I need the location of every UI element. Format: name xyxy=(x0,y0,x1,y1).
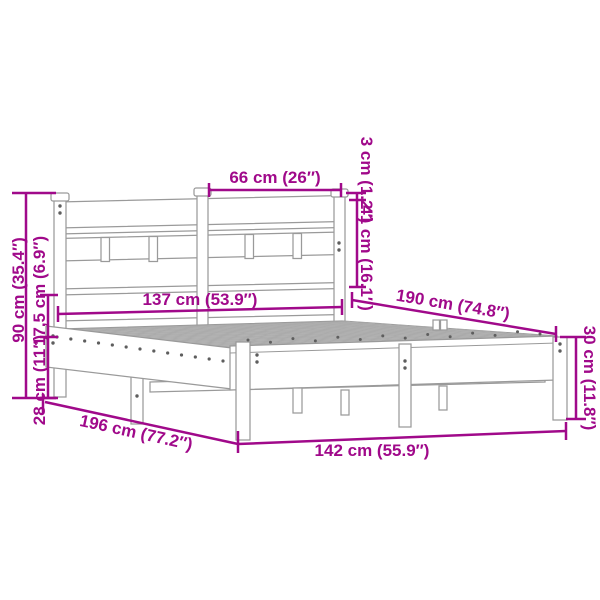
label-inner-width: 137 cm (53.9″) xyxy=(143,290,258,309)
foot-rail xyxy=(230,336,557,390)
mattress-bracket xyxy=(433,320,447,330)
label-total-width: 142 cm (55.9″) xyxy=(315,441,430,460)
label-headboard-height: 90 cm (35.4″) xyxy=(9,237,28,342)
label-footboard-height: 30 cm (11.8″) xyxy=(580,326,599,431)
label-headboard-panel-height: 41 cm (16.1″) xyxy=(357,205,376,310)
bed-frame-dimension-diagram: 66 cm (26″) 3 cm (1.2″) 41 cm (16.1″) 90… xyxy=(0,0,600,600)
label-headboard-section-width: 66 cm (26″) xyxy=(229,168,320,187)
label-under-bed-clearance: 28 cm (11″) xyxy=(30,335,49,425)
diagram-canvas: 66 cm (26″) 3 cm (1.2″) 41 cm (16.1″) 90… xyxy=(0,0,600,600)
label-side-rail-height: 17,5 cm (6.9″) xyxy=(30,236,49,346)
